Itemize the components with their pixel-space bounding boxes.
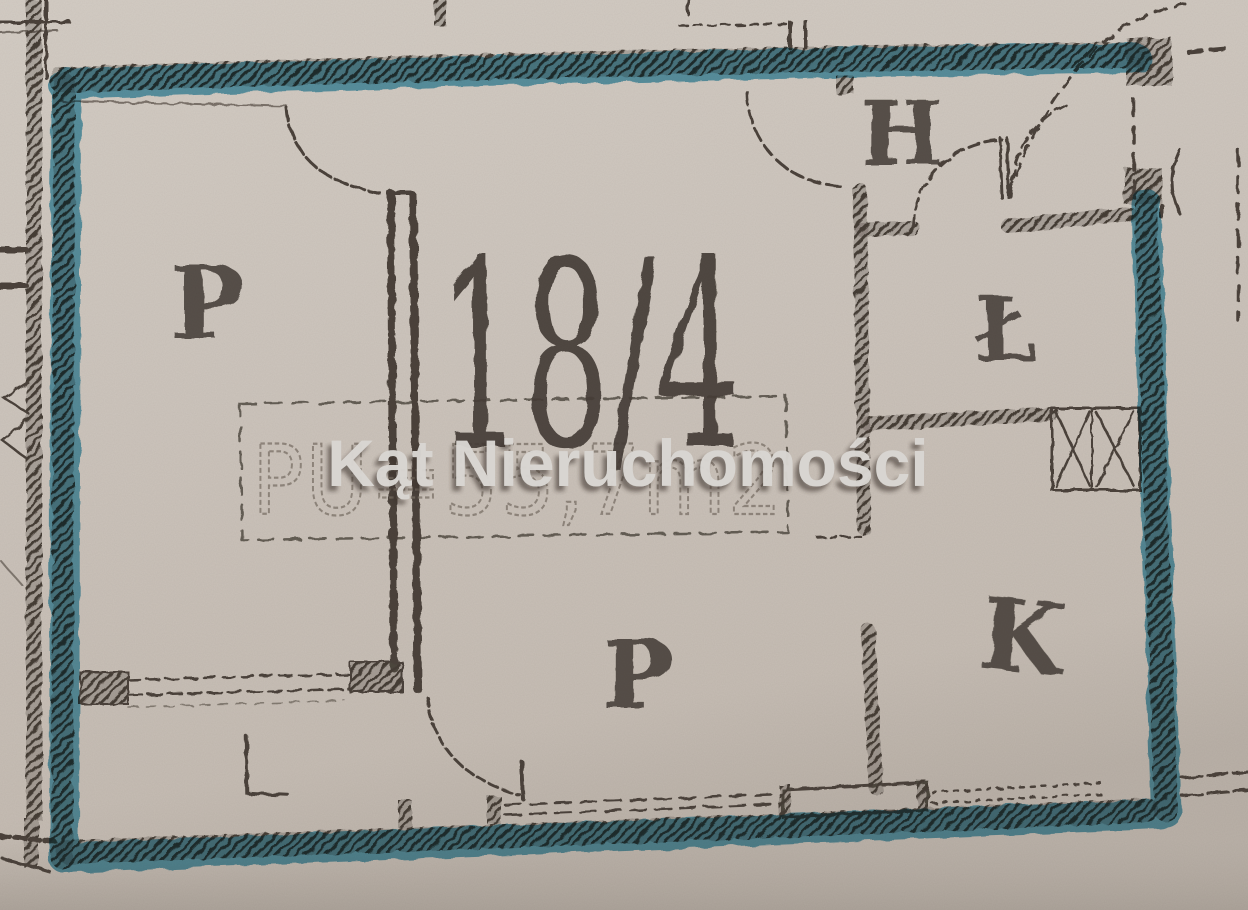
floorplan-drawing: PU=55,7m2 18/4 P H Ł K P Kąt Nieruchomoś… [0,0,1248,910]
watermark-text: Kąt Nieruchomości [327,426,928,500]
floorplan-photo: PU=55,7m2 18/4 P H Ł K P Kąt Nieruchomoś… [0,0,1248,910]
